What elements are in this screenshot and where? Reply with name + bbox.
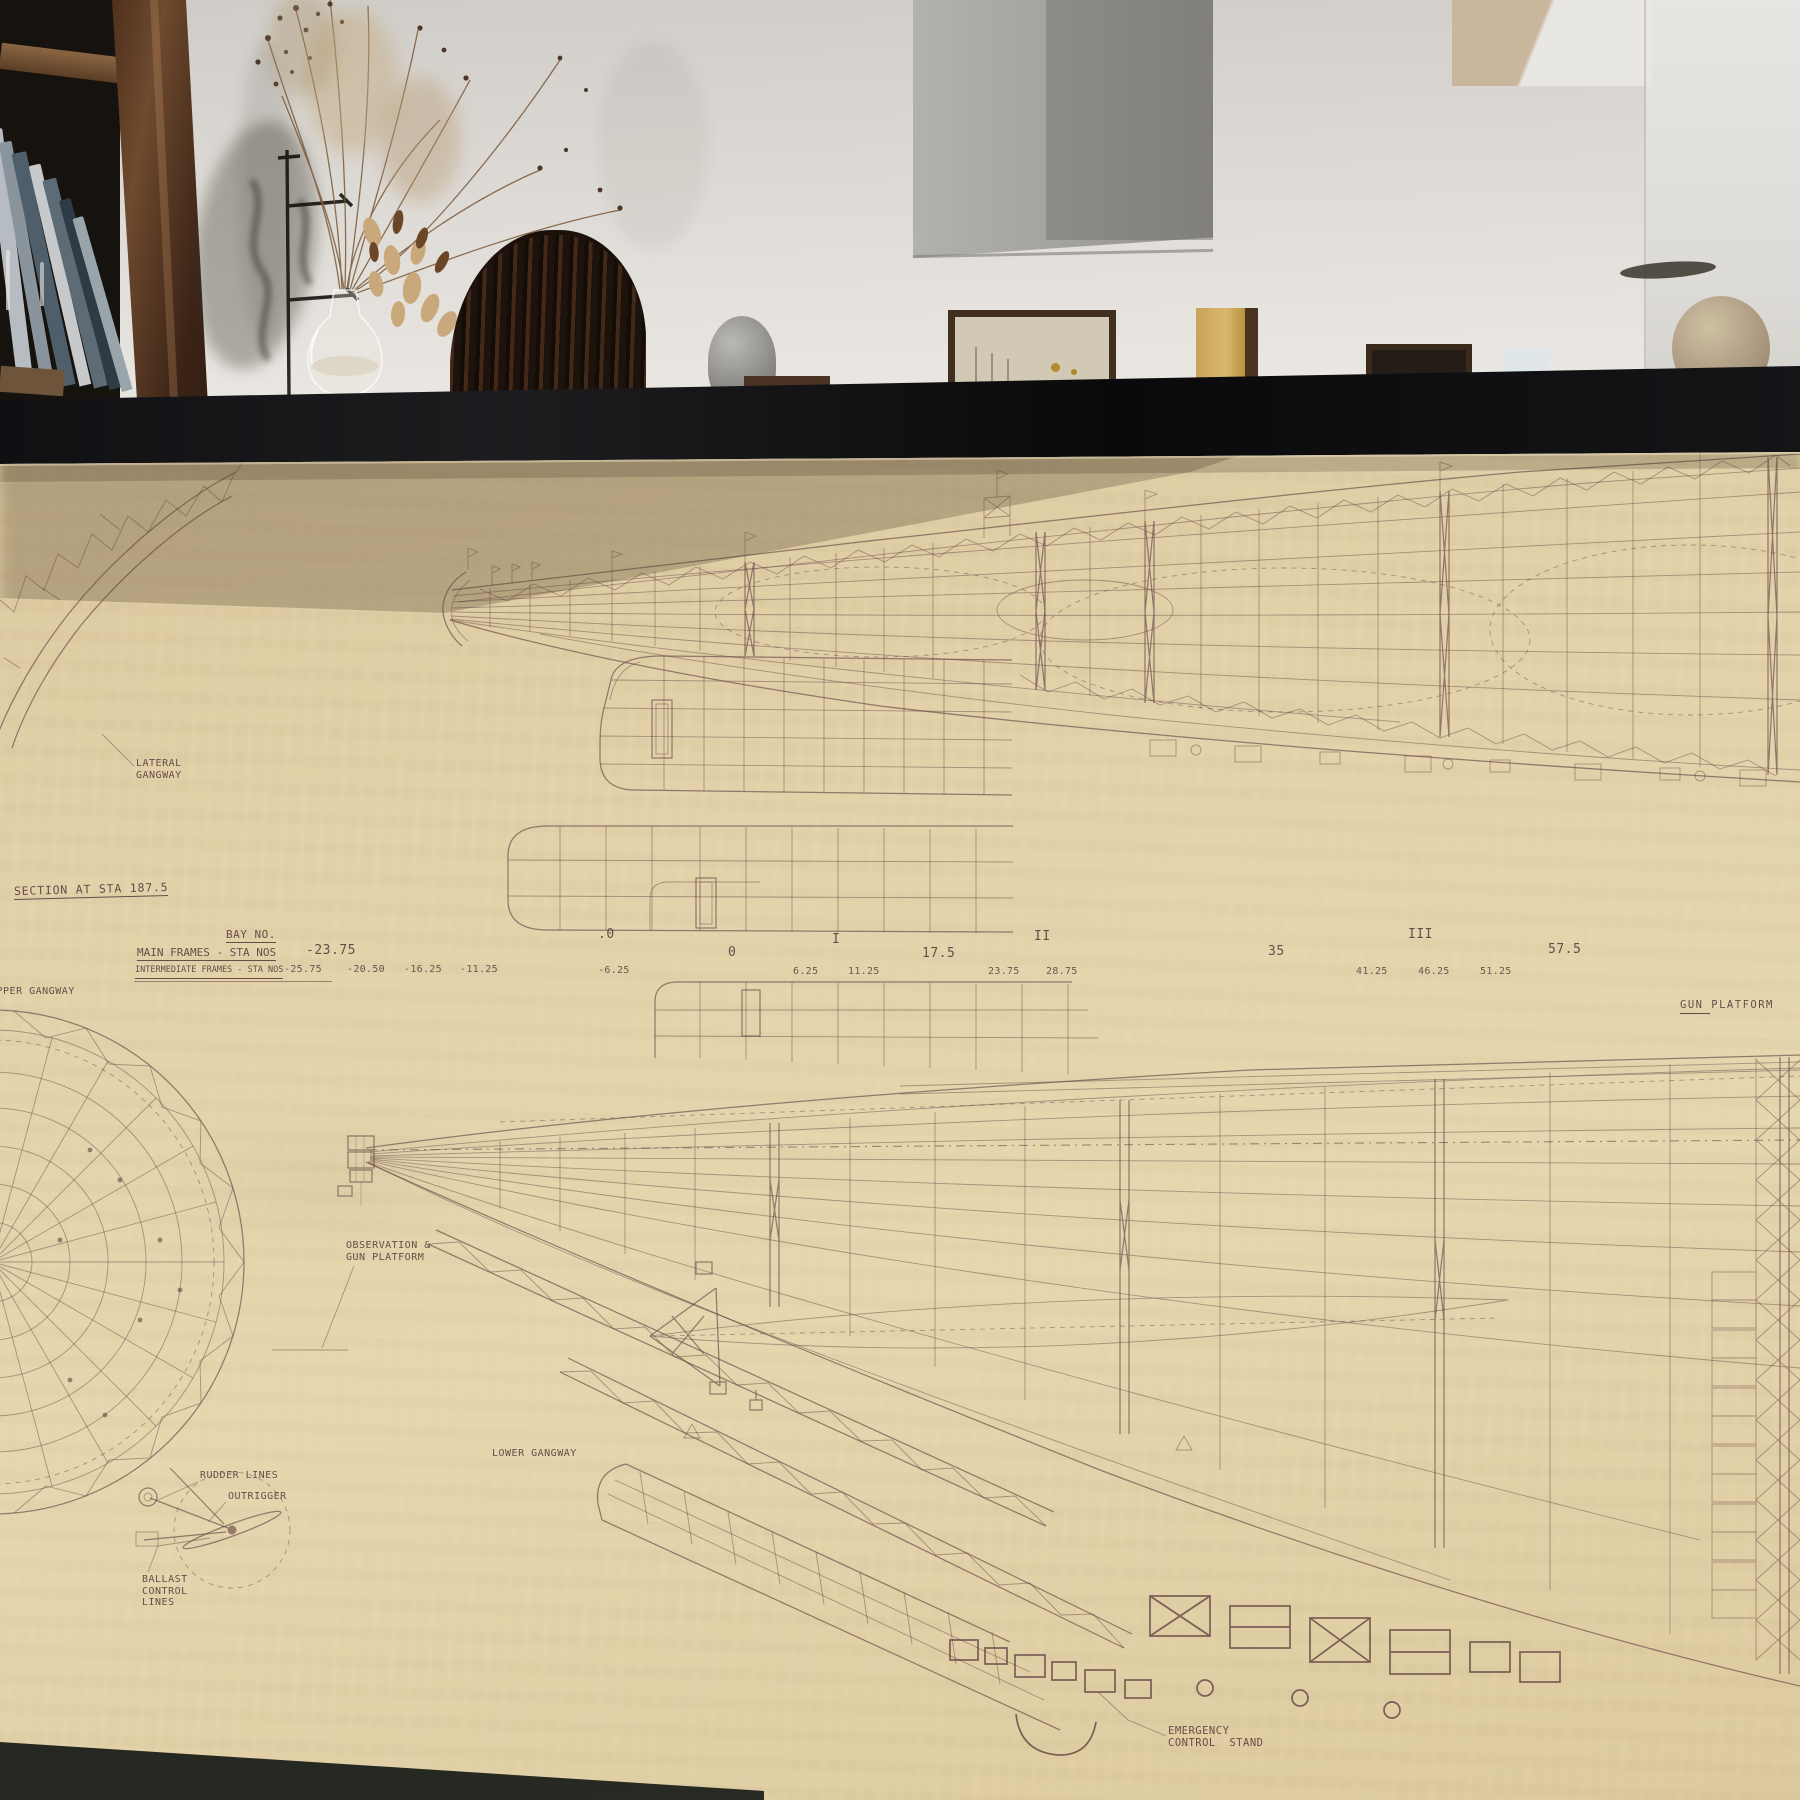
intermediate-station: 23.75 [988,967,1020,977]
bay-no-header: BAY NO. [226,929,276,943]
label-gun-platform: GUN PLATFORM [1680,1000,1774,1014]
stern-platform [338,1136,374,1206]
label-lateral-gangway: LATERALGANGWAY [136,758,182,781]
label-observation-gun-platform: OBSERVATION &GUN PLATFORM [346,1240,431,1263]
main-station: 0 [728,946,736,959]
plan-port-fin [508,826,1013,933]
airship-plan-view [272,1055,1800,1755]
intermediate-station: -16.25 [404,965,442,975]
right-edge-netting [1712,1058,1800,1660]
main-station: -23.75 [306,944,356,957]
bay-number: I [832,933,840,946]
intermediate-station: -25.75 [284,965,322,975]
gold-seal [1071,369,1077,375]
photo-of-framed-airship-blueprint: LATERALGANGWAY SECTION AT STA 187.5 BAY … [0,0,1800,1800]
intermediate-station: 41.25 [1356,967,1388,977]
label-ballast-control-lines: BALLASTCONTROLLINES [142,1574,188,1609]
main-station: 57.5 [1548,943,1581,956]
main-station: 35 [1268,945,1285,958]
intermediate-station: 11.25 [848,967,880,977]
label-lower-gangway: LOWER GANGWAY [492,1448,577,1460]
bunny-tail-grasses [360,215,461,340]
main-station: 17.5 [922,947,955,960]
tail-detail-structures [950,1596,1560,1718]
scale-rule [134,981,332,982]
intermediate-station: -20.50 [347,965,385,975]
gold-seal [1051,363,1060,372]
ceiling-soffit [1452,0,1652,86]
intermediate-station: 46.25 [1418,967,1450,977]
label-emergency-control-stand: EMERGENCYCONTROL STAND [1168,1726,1264,1749]
intermediate-station: -6.25 [598,966,630,976]
pampas-plumes [268,0,460,202]
niche-shadow-side [1046,0,1213,240]
glass-flask [308,290,382,396]
dried-flower-arrangement [0,0,760,420]
label-outrigger: OUTRIGGER [228,1491,287,1503]
wall-shadow-squiggles [252,180,310,360]
main-frames-header: MAIN FRAMES - STA NOS [137,947,276,961]
bay-number: .0 [598,928,615,941]
plan-main-frames [770,1057,1789,1674]
label-rudder-lines: RUDDER LINES [200,1470,278,1482]
plan-starboard-fin [655,982,1098,1074]
intermediate-station: 28.75 [1046,967,1078,977]
intermediate-station: -11.25 [460,965,498,975]
intermediate-station: 51.25 [1480,967,1512,977]
bay-number: II [1034,930,1051,943]
teasel-pods [368,209,452,275]
label-upper-gangway: UPPER GANGWAY [0,986,75,998]
intermediate-station: 6.25 [793,967,818,977]
outrigger-propeller [136,1468,290,1588]
bay-number: III [1408,928,1433,941]
intermediate-frames-header: INTERMEDIATE FRAMES - STA NOS [135,965,283,979]
